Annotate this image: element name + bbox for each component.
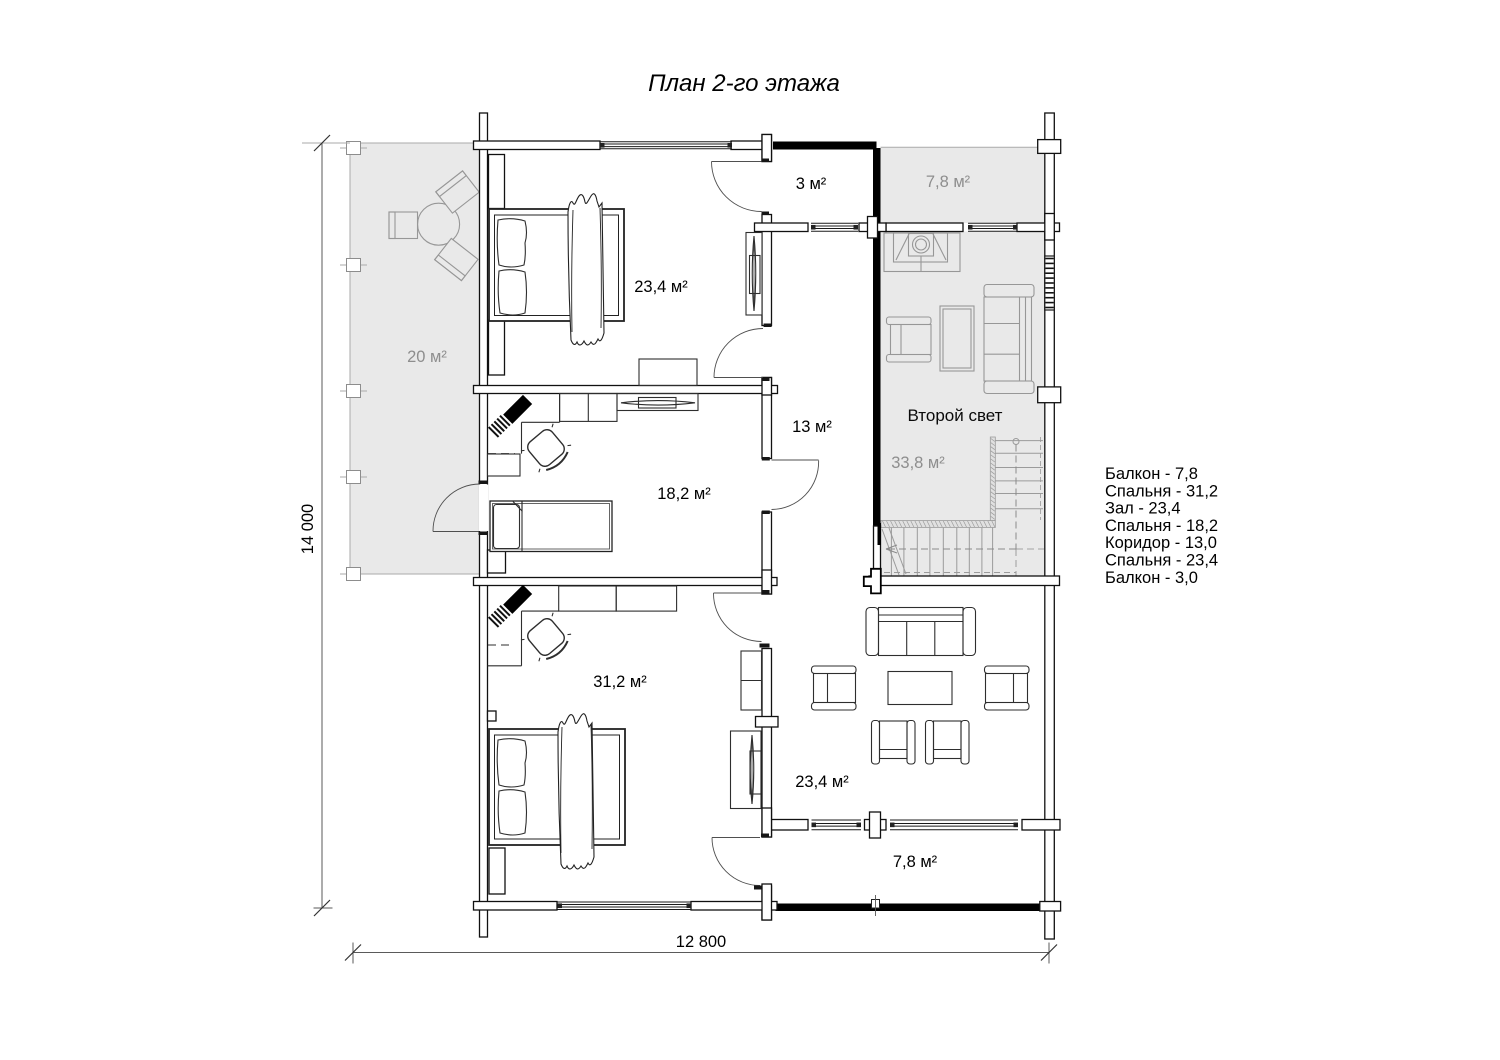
svg-text:План 2-го этажа: План 2-го этажа xyxy=(648,70,840,97)
svg-text:20 м²: 20 м² xyxy=(407,348,447,366)
svg-text:23,4 м²: 23,4 м² xyxy=(795,773,849,791)
svg-text:Балкон - 3,0: Балкон - 3,0 xyxy=(1105,569,1198,587)
svg-text:13 м²: 13 м² xyxy=(792,418,832,436)
svg-text:Спальня - 18,2: Спальня - 18,2 xyxy=(1105,517,1218,535)
svg-text:Балкон - 7,8: Балкон - 7,8 xyxy=(1105,465,1198,483)
svg-text:Спальня - 23,4: Спальня - 23,4 xyxy=(1105,552,1218,570)
svg-text:14 000: 14 000 xyxy=(299,504,317,554)
svg-text:Второй свет: Второй свет xyxy=(908,406,1003,425)
svg-text:Спальня - 31,2: Спальня - 31,2 xyxy=(1105,482,1218,500)
svg-text:33,8 м²: 33,8 м² xyxy=(891,454,945,472)
svg-text:3 м²: 3 м² xyxy=(796,175,827,193)
svg-text:7,8 м²: 7,8 м² xyxy=(893,853,938,871)
svg-text:23,4 м²: 23,4 м² xyxy=(634,278,688,296)
svg-text:7,8 м²: 7,8 м² xyxy=(926,173,971,191)
svg-text:Коридор - 13,0: Коридор - 13,0 xyxy=(1105,534,1217,552)
svg-text:18,2 м²: 18,2 м² xyxy=(657,485,711,503)
svg-text:Зал - 23,4: Зал - 23,4 xyxy=(1105,500,1181,518)
svg-text:31,2 м²: 31,2 м² xyxy=(593,673,647,691)
svg-text:12 800: 12 800 xyxy=(676,933,726,951)
